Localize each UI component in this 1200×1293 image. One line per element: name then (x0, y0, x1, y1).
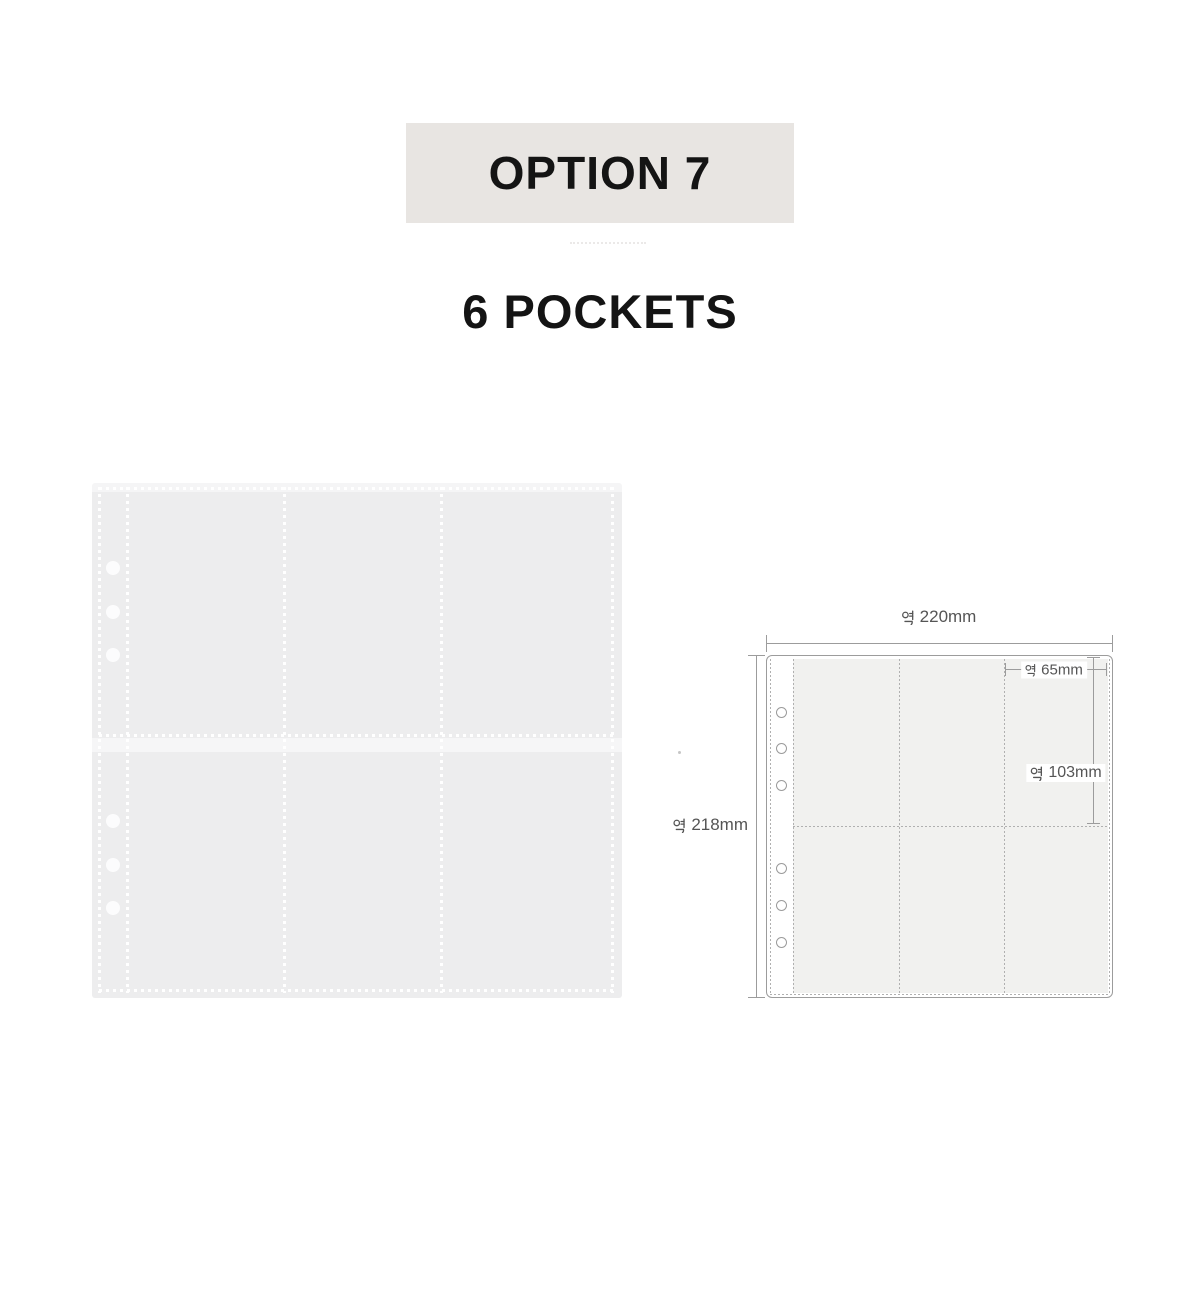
diagram-binder-hole (776, 707, 787, 718)
pocket-height-dimension-value: 103mm (1048, 764, 1101, 782)
hangul-approx-glyph (1025, 664, 1037, 677)
width-dimension-tick (1112, 635, 1113, 652)
binder-hole (106, 648, 120, 662)
diagram-stitch-bottom (770, 994, 1108, 995)
stitch-line-bottom (99, 989, 615, 992)
product-photo-sheet (92, 483, 622, 998)
diagram-row-divider (793, 826, 1108, 827)
faint-dotted-artifact (570, 242, 646, 244)
pocket-height-dimension-label: 103mm (1026, 764, 1105, 782)
pocket-height-dimension-line (1093, 657, 1094, 824)
hangul-approx-glyph (902, 610, 916, 625)
hangul-approx-glyph (1030, 766, 1044, 781)
pocket-height-dimension-tick (1087, 823, 1100, 824)
width-dimension-label: 220mm (902, 607, 977, 627)
pocket-opening-band (92, 738, 622, 752)
diagram-stitch-left (770, 659, 771, 993)
height-dimension-tick (748, 655, 765, 656)
height-dimension-label: 218mm (666, 815, 748, 835)
pocket-width-dimension-label: 65mm (1021, 662, 1087, 679)
binder-hole (106, 605, 120, 619)
stitch-line-top (99, 487, 615, 490)
diagram-sheet-outline (766, 655, 1113, 998)
height-dimension-tick (748, 997, 765, 998)
pocket-width-dimension-tick (1005, 663, 1006, 676)
width-dimension-tick (766, 635, 767, 652)
diagram-binder-hole (776, 937, 787, 948)
height-dimension-value: 218mm (691, 815, 748, 835)
diagram-binder-hole (776, 863, 787, 874)
page-title: 6 POCKETS (0, 284, 1200, 339)
binder-hole (106, 901, 120, 915)
diagram-binder-hole (776, 900, 787, 911)
binder-hole (106, 561, 120, 575)
width-dimension-value: 220mm (920, 607, 977, 627)
binder-hole (106, 858, 120, 872)
pocket-width-dimension-value: 65mm (1041, 662, 1083, 679)
height-dimension-line (756, 655, 757, 998)
pocket-height-dimension-tick (1087, 657, 1100, 658)
image-speck-artifact (678, 751, 681, 754)
option-badge-label: OPTION 7 (489, 146, 712, 200)
pocket-width-dimension-tick (1106, 663, 1107, 676)
hangul-approx-glyph (673, 818, 687, 833)
product-detail-image: OPTION 7 6 POCKETS (0, 0, 1200, 1293)
diagram-stitch-right (1109, 659, 1110, 993)
row-divider-seam (99, 734, 615, 737)
binder-hole (106, 814, 120, 828)
diagram-binder-hole (776, 743, 787, 754)
option-badge: OPTION 7 (406, 123, 794, 223)
diagram-binder-hole (776, 780, 787, 791)
width-dimension-line (766, 643, 1113, 644)
